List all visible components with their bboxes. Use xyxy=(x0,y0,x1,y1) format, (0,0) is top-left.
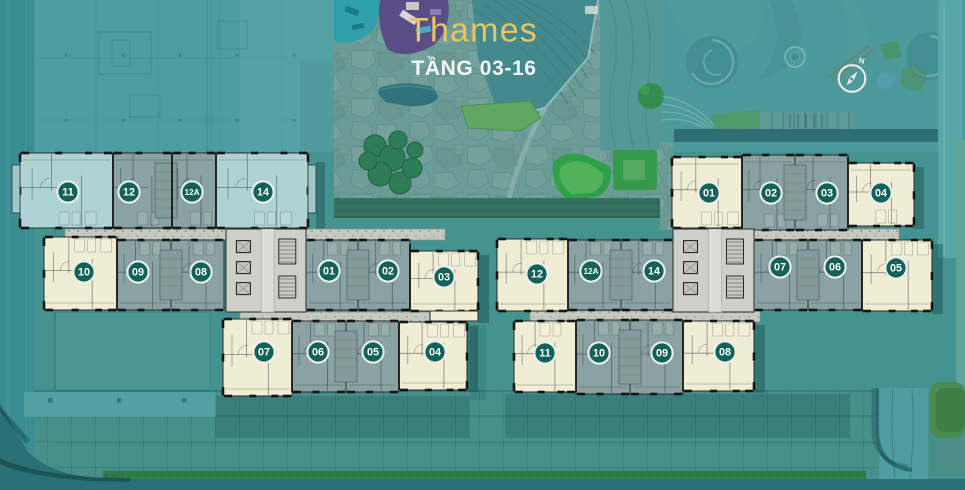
svg-text:12: 12 xyxy=(123,187,135,199)
svg-text:Thames: Thames xyxy=(408,12,538,50)
svg-text:14: 14 xyxy=(257,187,269,199)
svg-text:04: 04 xyxy=(429,347,441,359)
svg-text:09: 09 xyxy=(132,267,144,279)
svg-text:05: 05 xyxy=(367,347,379,359)
svg-text:10: 10 xyxy=(593,348,605,360)
svg-text:07: 07 xyxy=(774,262,786,274)
svg-text:12: 12 xyxy=(531,269,543,281)
svg-text:03: 03 xyxy=(821,188,833,200)
svg-text:05: 05 xyxy=(890,263,902,275)
svg-text:11: 11 xyxy=(539,348,550,360)
svg-text:01: 01 xyxy=(323,266,335,278)
svg-text:08: 08 xyxy=(195,267,207,279)
svg-text:12A: 12A xyxy=(184,188,199,197)
svg-text:04: 04 xyxy=(875,188,887,200)
svg-text:07: 07 xyxy=(258,347,270,359)
svg-text:14: 14 xyxy=(648,266,660,278)
svg-text:12A: 12A xyxy=(583,267,598,276)
svg-text:09: 09 xyxy=(656,348,668,360)
svg-text:06: 06 xyxy=(312,347,324,359)
svg-text:10: 10 xyxy=(78,267,90,279)
svg-text:01: 01 xyxy=(703,188,715,200)
svg-text:08: 08 xyxy=(719,347,731,359)
svg-text:02: 02 xyxy=(765,188,777,200)
svg-text:02: 02 xyxy=(382,266,394,278)
svg-text:06: 06 xyxy=(829,262,841,274)
svg-text:11: 11 xyxy=(62,187,73,199)
svg-text:TẦNG 03-16: TẦNG 03-16 xyxy=(411,57,536,80)
svg-text:03: 03 xyxy=(438,272,450,284)
